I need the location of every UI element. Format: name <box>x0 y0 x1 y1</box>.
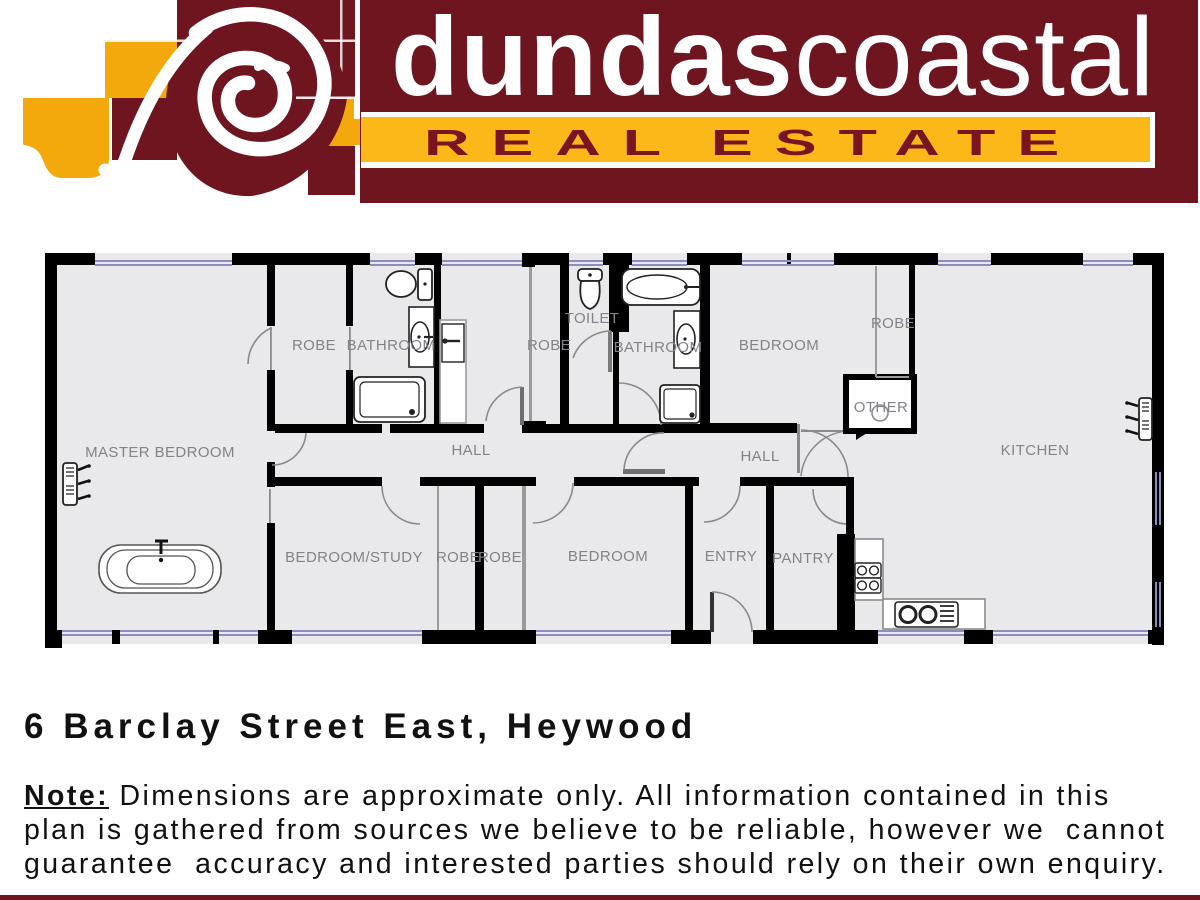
svg-text:PANTRY: PANTRY <box>772 550 834 567</box>
svg-text:BEDROOM: BEDROOM <box>739 337 819 354</box>
svg-text:ROBE: ROBE <box>871 315 915 332</box>
svg-text:ENTRY: ENTRY <box>705 548 758 565</box>
svg-text:OTHER: OTHER <box>854 399 909 416</box>
svg-text:ROBE: ROBE <box>436 549 480 566</box>
svg-text:BATHROOM: BATHROOM <box>347 337 436 354</box>
svg-text:HALL: HALL <box>451 442 490 459</box>
svg-text:BATHROOM: BATHROOM <box>614 339 703 356</box>
svg-text:BEDROOM: BEDROOM <box>568 548 648 565</box>
svg-text:ROBE: ROBE <box>292 337 336 354</box>
svg-text:TOILET: TOILET <box>565 310 620 327</box>
svg-text:HALL: HALL <box>740 448 779 465</box>
svg-text:ROBE: ROBE <box>478 549 522 566</box>
svg-text:BEDROOM/STUDY: BEDROOM/STUDY <box>285 549 423 566</box>
svg-text:MASTER BEDROOM: MASTER BEDROOM <box>85 444 235 461</box>
svg-text:ROBE: ROBE <box>527 337 571 354</box>
svg-text:KITCHEN: KITCHEN <box>1001 442 1070 459</box>
